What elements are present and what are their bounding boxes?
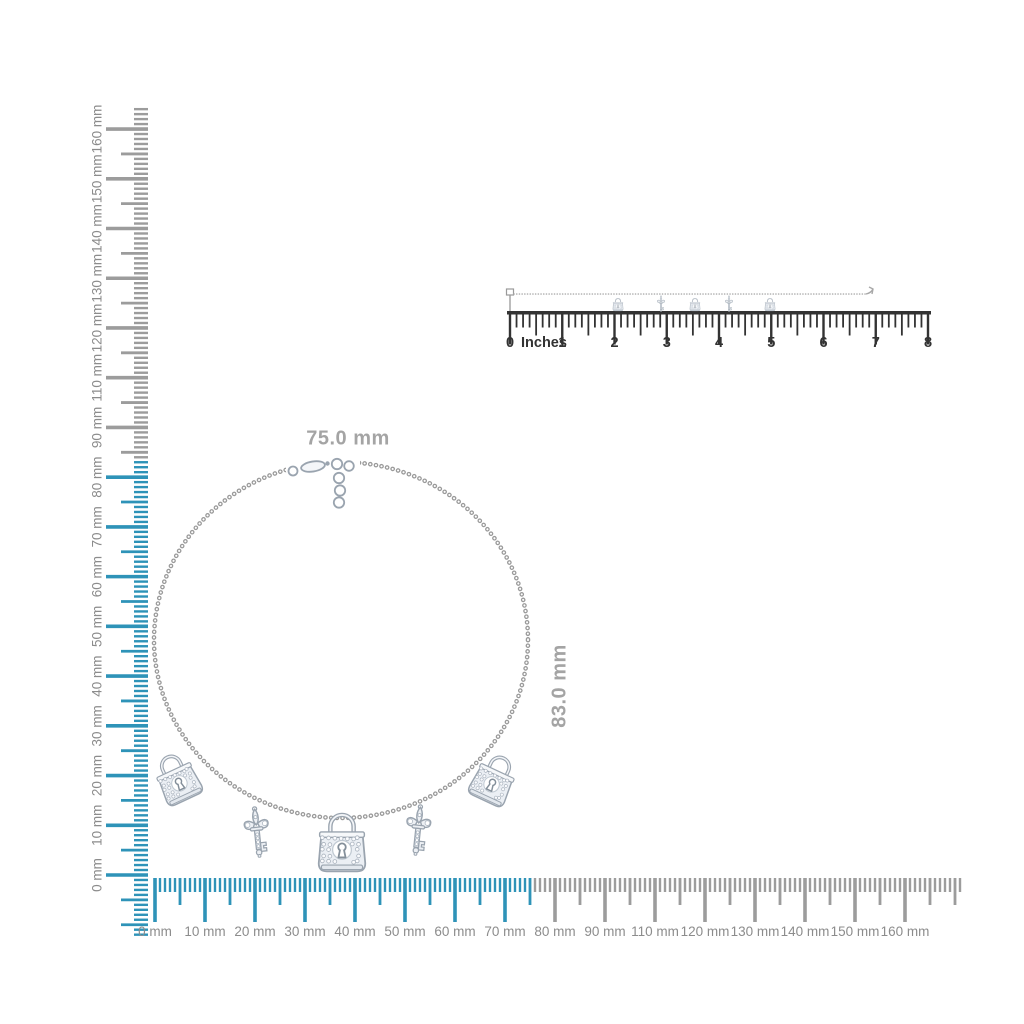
h-ruler-label: 20 mm [234, 924, 275, 939]
h-ruler-label: 50 mm [384, 924, 425, 939]
h-ruler-label: 140 mm [781, 924, 830, 939]
measurement-scene: 0 mm10 mm20 mm30 mm40 mm50 mm60 mm70 mm8… [0, 0, 1024, 1024]
bead-chain [154, 462, 528, 818]
h-ruler-label: 40 mm [334, 924, 375, 939]
mini-lock-charm [613, 298, 623, 310]
h-ruler-label: 110 mm [631, 924, 679, 939]
v-ruler-label: 140 mm [90, 204, 105, 253]
height-dimension-label: 83.0 mm [549, 644, 572, 728]
inch-number-label: 2 [610, 335, 618, 351]
v-ruler-label: 10 mm [90, 805, 105, 846]
v-ruler-label: 160 mm [90, 105, 105, 154]
extender-link [334, 473, 344, 483]
width-dimension-label: 75.0 mm [306, 428, 390, 451]
necklace [150, 455, 528, 871]
h-ruler-label: 60 mm [434, 924, 475, 939]
v-ruler-label: 110 mm [90, 354, 105, 402]
mini-key-charm [725, 296, 733, 312]
v-ruler-label: 90 mm [90, 407, 105, 448]
mini-key-charm [657, 296, 665, 312]
mini-lock-charm [765, 298, 775, 310]
h-ruler-label: 90 mm [584, 924, 625, 939]
v-ruler-label: 120 mm [90, 304, 105, 353]
charms [150, 749, 521, 871]
h-ruler-label: 120 mm [681, 924, 730, 939]
key-charm [243, 806, 272, 859]
h-ruler-label: 0 mm [138, 924, 172, 939]
h-ruler-label: 80 mm [534, 924, 575, 939]
inch-number-label: 3 [663, 335, 671, 351]
inch-number-label: 1 [558, 335, 566, 351]
inch-number-label: 7 [872, 335, 880, 351]
extender-link [335, 485, 345, 495]
straight-chain-scale [507, 287, 874, 312]
inch-number-label: 8 [924, 335, 932, 351]
h-ruler-label: 150 mm [831, 924, 880, 939]
h-ruler-label: 160 mm [881, 924, 930, 939]
v-ruler-label: 150 mm [90, 154, 105, 203]
v-ruler-label: 80 mm [90, 457, 105, 498]
inch-number-label: 5 [767, 335, 775, 351]
v-ruler-label: 20 mm [90, 755, 105, 796]
key-charm [404, 804, 433, 857]
h-ruler-label: 130 mm [731, 924, 780, 939]
v-ruler-label: 30 mm [90, 705, 105, 746]
inch-number-label: 6 [819, 335, 827, 351]
h-ruler-label: 70 mm [484, 924, 525, 939]
lock-charm [150, 749, 204, 807]
h-ruler-label: 10 mm [184, 924, 225, 939]
lock-charm [467, 750, 521, 808]
inch-ruler: 0Inches12345678 [506, 311, 932, 351]
v-ruler-label: 70 mm [90, 506, 105, 547]
v-ruler-label: 50 mm [90, 606, 105, 647]
v-ruler-label: 40 mm [90, 655, 105, 696]
v-ruler-label: 130 mm [90, 254, 105, 303]
horizontal-mm-ruler: 0 mm10 mm20 mm30 mm40 mm50 mm60 mm70 mm8… [138, 878, 960, 939]
mini-lock-charm [690, 298, 700, 310]
product-measurement-image: 0 mm10 mm20 mm30 mm40 mm50 mm60 mm70 mm8… [0, 0, 1024, 1024]
lock-charm [319, 815, 366, 871]
h-ruler-label: 30 mm [284, 924, 325, 939]
extender-link [334, 497, 344, 507]
inch-number-label: 4 [715, 335, 723, 351]
v-ruler-label: 0 mm [90, 858, 105, 892]
v-ruler-label: 60 mm [90, 556, 105, 597]
inch-zero-label: 0 [506, 335, 514, 351]
vertical-mm-ruler: 0 mm10 mm20 mm30 mm40 mm50 mm60 mm70 mm8… [90, 105, 148, 935]
